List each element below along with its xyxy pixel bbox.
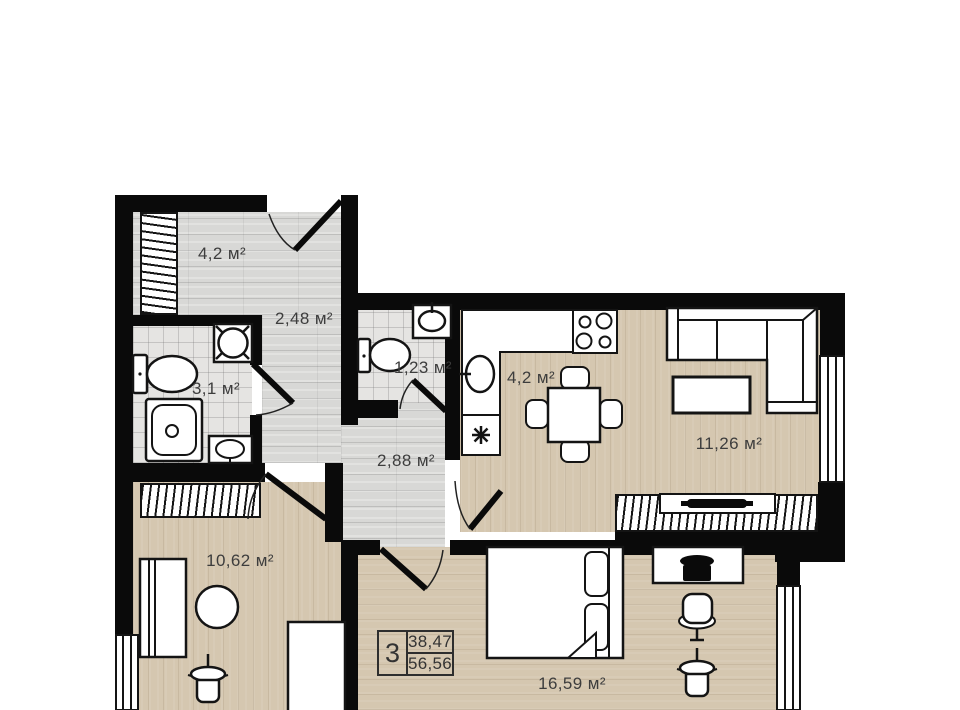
tv-console-icon <box>660 494 775 513</box>
room-label-wardrobe-hall: 4,2 м² <box>198 244 246 264</box>
wardrobe-shelf-icon <box>140 559 186 657</box>
apartment-info-badge: 3 38,47 56,56 <box>377 630 454 676</box>
room-label-entry-hall: 2,48 м² <box>275 309 333 329</box>
window-bedroom-right <box>777 586 800 710</box>
bathroom-sink-icon <box>209 436 252 463</box>
room-label-living-room: 11,26 м² <box>696 434 763 454</box>
bathroom-toilet-icon <box>133 355 197 393</box>
wc-sink-icon <box>413 302 451 338</box>
double-bed-icon <box>487 547 623 658</box>
total-area-value: 56,56 <box>408 652 452 674</box>
shower-tray-icon <box>146 399 202 461</box>
door-kitchen <box>455 481 501 529</box>
window-living-right <box>820 356 844 482</box>
door-bedroom <box>381 549 443 589</box>
door-entry <box>269 201 341 250</box>
stove-icon <box>573 310 617 353</box>
round-table-icon <box>196 586 238 628</box>
shower-cabin-icon <box>214 324 252 362</box>
fridge-icon <box>462 415 500 455</box>
window-room-left <box>116 635 138 710</box>
room-label-inner-hall: 2,88 м² <box>377 451 435 471</box>
room-label-room-small: 10,62 м² <box>206 551 274 571</box>
rooms-count: 3 <box>379 632 406 674</box>
coffee-table-icon <box>673 377 750 413</box>
door-bathroom <box>253 364 293 415</box>
area-values: 38,47 56,56 <box>406 632 452 674</box>
room-label-wc: 1,23 м² <box>394 358 452 378</box>
room-label-bathroom: 3,1 м² <box>192 379 240 399</box>
plant-pot-room-icon <box>188 654 228 702</box>
room-label-bedroom: 16,59 м² <box>538 674 606 694</box>
room-desk-icon <box>288 622 345 710</box>
floor-plan-canvas: 4,2 м² 2,48 м² 1,23 м² 3,1 м² 4,2 м² 11,… <box>0 0 960 710</box>
living-area-value: 38,47 <box>408 632 452 652</box>
office-chair-icon <box>679 594 715 640</box>
plan-symbols <box>0 0 960 710</box>
door-wc <box>400 380 446 411</box>
desk-with-monitor-icon <box>653 547 743 583</box>
plant-pot-bedroom-icon <box>677 648 717 696</box>
door-room-small <box>248 474 326 519</box>
room-label-kitchen: 4,2 м² <box>507 368 555 388</box>
